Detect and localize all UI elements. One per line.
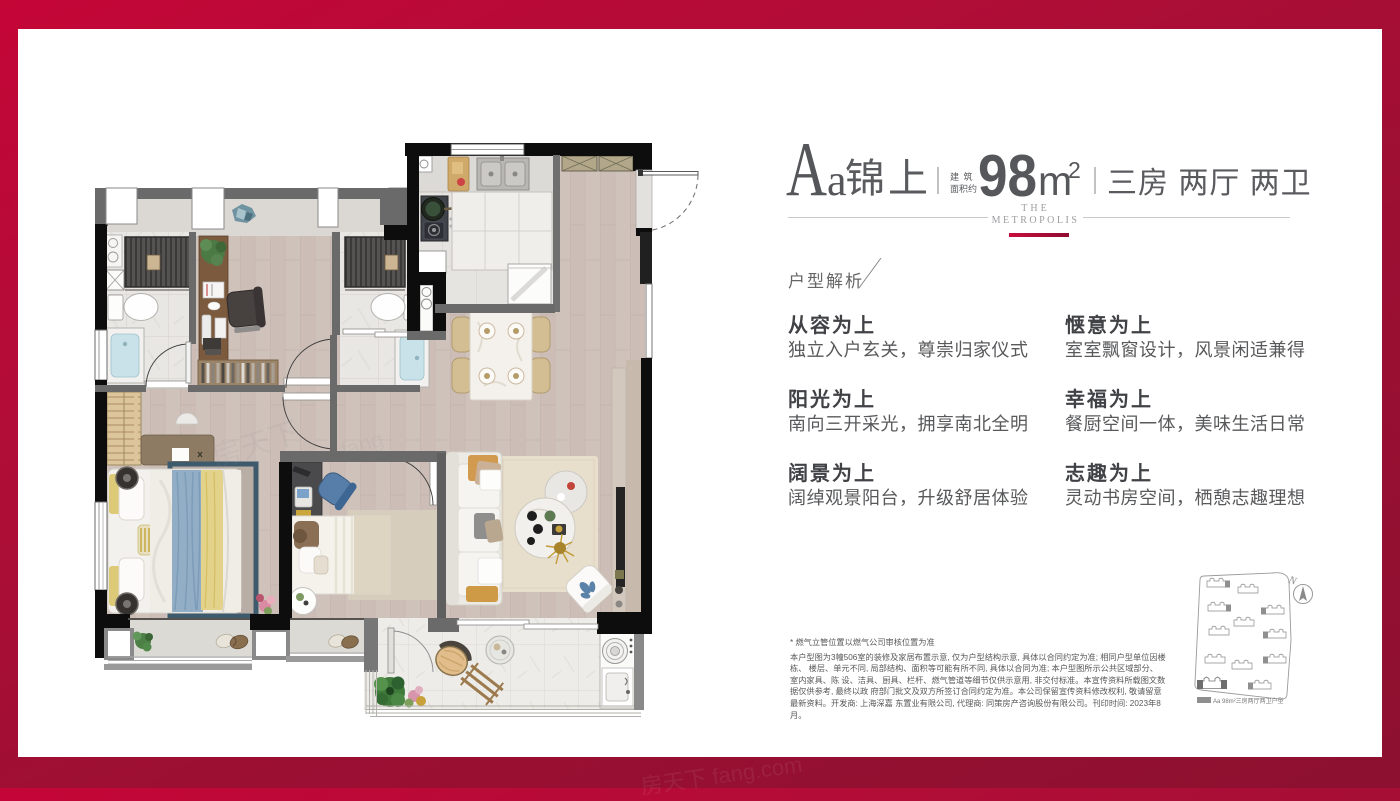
svg-text:A: A <box>786 138 827 203</box>
svg-text:Aa 98m²三房两厅两卫户型: Aa 98m²三房两厅两卫户型 <box>1213 697 1284 705</box>
svg-text:98: 98 <box>978 143 1037 203</box>
svg-text:2: 2 <box>1068 157 1081 183</box>
svg-text:锦上: 锦上 <box>845 157 931 201</box>
svg-text:三房 两厅 两卫: 三房 两厅 两卫 <box>1107 167 1312 200</box>
svg-text:面积约: 面积约 <box>950 183 977 194</box>
svg-text:a: a <box>827 156 847 203</box>
svg-text:建筑: 建筑 <box>950 171 977 182</box>
